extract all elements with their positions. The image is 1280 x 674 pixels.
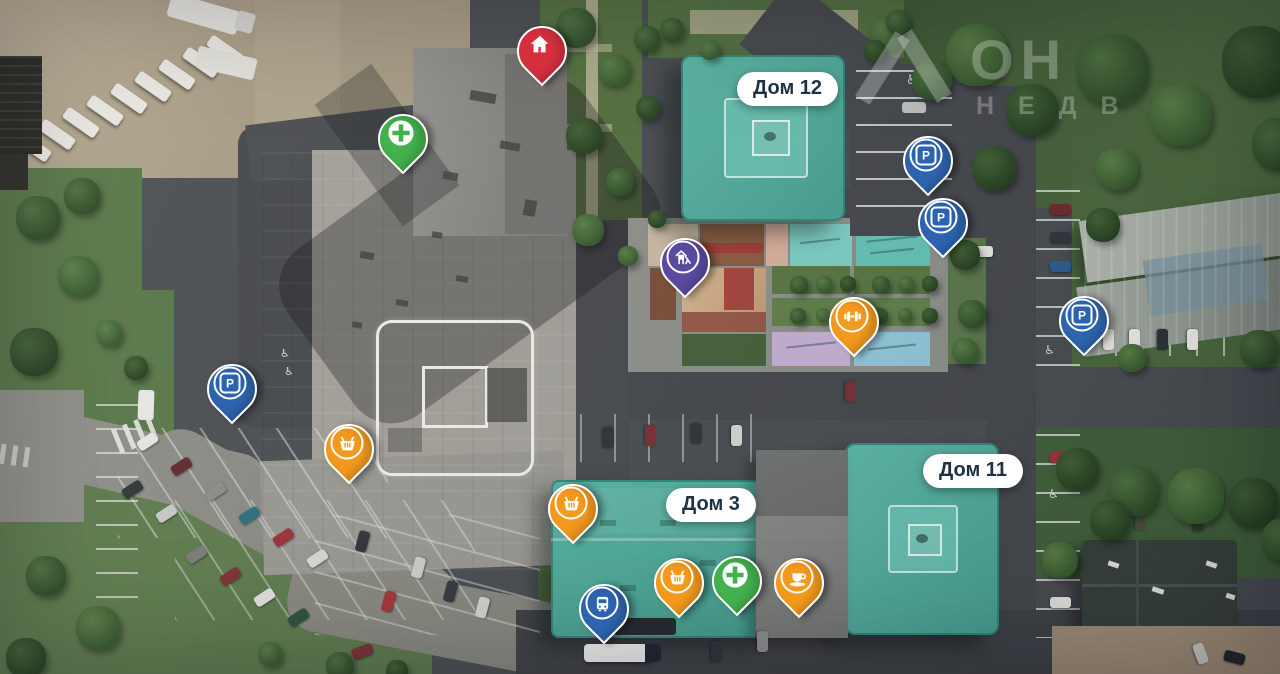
parking-icon: P <box>214 367 247 400</box>
parking-icon: P <box>925 201 958 234</box>
medical-cross-icon <box>722 562 749 589</box>
parking-pin-northeast-upper[interactable]: P <box>893 126 959 192</box>
shop-pin-dom3[interactable] <box>538 474 604 540</box>
basket-icon <box>661 561 694 594</box>
parking-icon: P <box>1066 299 1099 332</box>
basket-icon <box>555 487 588 520</box>
coffee-icon <box>781 561 814 594</box>
playground-icon <box>667 241 700 274</box>
parking-pin-west[interactable]: P <box>197 354 263 420</box>
basket-icon <box>331 427 364 460</box>
playground-pin[interactable] <box>650 228 716 294</box>
home-pin[interactable] <box>507 16 573 82</box>
fitness-pin[interactable] <box>819 287 885 353</box>
pharmacy-pin-south[interactable] <box>702 546 768 612</box>
house-label-dom11[interactable]: Дом 11 <box>923 454 1023 488</box>
shop-pin-south[interactable] <box>644 548 710 614</box>
home-icon <box>528 33 552 57</box>
parking-pin-east[interactable]: P <box>1049 286 1115 352</box>
house-label-dom3[interactable]: Дом 3 <box>666 488 756 522</box>
house-label-dom12[interactable]: Дом 12 <box>737 72 838 106</box>
bus-stop-pin[interactable] <box>569 574 635 640</box>
pharmacy-pin-north[interactable] <box>368 104 434 170</box>
bus-icon <box>586 587 619 620</box>
parking-icon: P <box>910 139 943 172</box>
residential-masterplan-map: ♿♿♿♿♿ Дом 12 Дом 11 Дом 3 PPPP ОН НЕДВ <box>0 0 1280 674</box>
cafe-pin[interactable] <box>764 548 830 614</box>
shop-pin-west[interactable] <box>314 414 380 480</box>
medical-cross-icon <box>388 120 415 147</box>
dumbbell-icon <box>836 300 869 333</box>
parking-pin-northeast-lower[interactable]: P <box>908 188 974 254</box>
